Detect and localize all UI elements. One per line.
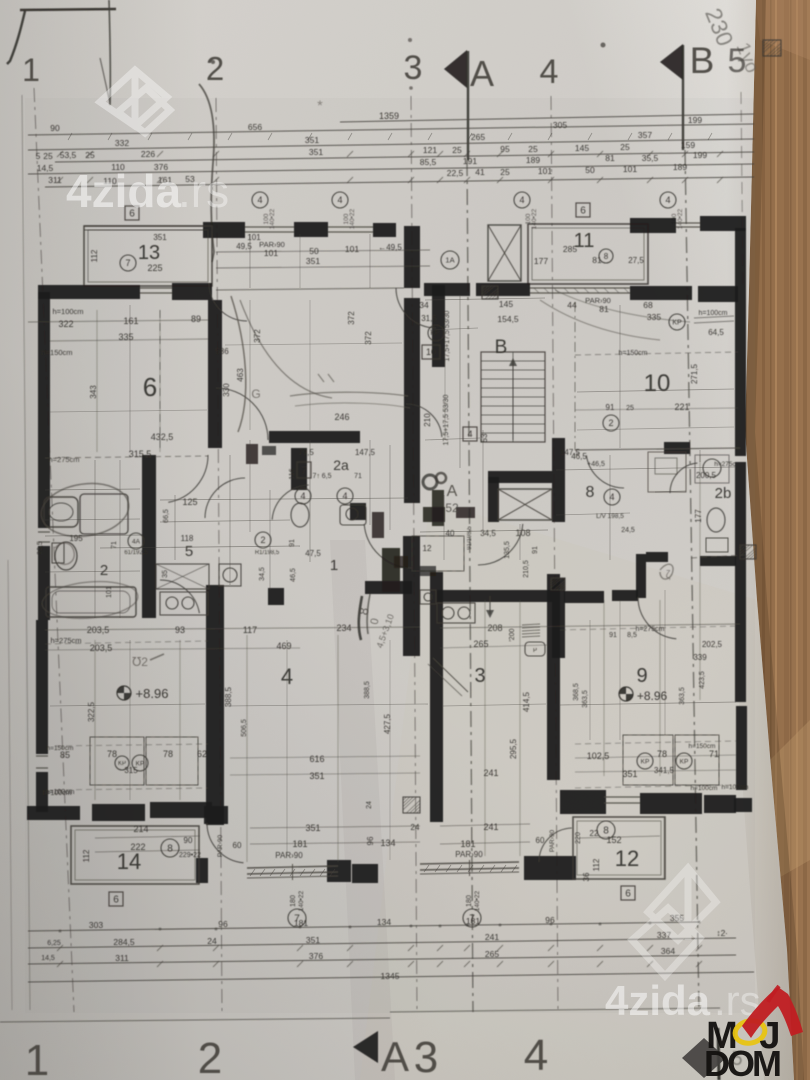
svg-text:h=100cm: h=100cm [722,784,749,791]
svg-text:24: 24 [207,936,217,946]
svg-text:34,5: 34,5 [480,529,496,538]
svg-text:7: 7 [125,258,130,268]
svg-text:372: 372 [253,329,262,343]
svg-text:40: 40 [446,529,455,538]
svg-text:101: 101 [538,166,552,176]
svg-text:372: 372 [364,331,373,345]
svg-text:101: 101 [264,248,278,258]
svg-text:2: 2 [206,50,224,87]
svg-text:8: 8 [604,252,609,261]
svg-text:177: 177 [694,509,703,523]
svg-text:351: 351 [309,771,324,781]
svg-text:351: 351 [153,233,167,242]
svg-text:388,5: 388,5 [224,686,233,707]
svg-text:152: 152 [606,835,621,845]
svg-text:140•22: 140•22 [677,208,684,229]
svg-text:35: 35 [162,570,169,578]
svg-text:357: 357 [638,130,652,140]
svg-text:85,5: 85,5 [420,157,437,167]
svg-text:66,5: 66,5 [163,509,170,523]
svg-text:P: P [533,648,537,654]
svg-text:351: 351 [309,147,323,157]
svg-text:203,5: 203,5 [90,643,113,653]
svg-text:199: 199 [693,150,707,160]
svg-text:222: 222 [130,842,145,852]
svg-text:284,5: 284,5 [113,937,135,947]
svg-text:27,5: 27,5 [628,256,644,265]
svg-text:PAR›90: PAR›90 [217,834,224,857]
svg-text:315,5: 315,5 [129,449,152,459]
svg-text:1: 1 [22,52,40,88]
svg-text:52: 52 [445,501,459,515]
svg-text:h=275cm: h=275cm [636,626,665,633]
svg-text:199: 199 [688,115,702,125]
svg-text:101: 101 [623,164,637,174]
svg-text:6,25: 6,25 [47,940,61,947]
svg-text:14,5: 14,5 [41,955,55,962]
svg-text:189: 189 [526,155,540,165]
svg-text:181: 181 [292,839,307,849]
svg-text:3: 3 [404,49,423,87]
svg-text:140•22: 140•22 [269,208,276,229]
svg-text:8,5: 8,5 [627,632,637,639]
svg-text:4: 4 [257,195,262,205]
svg-text:145: 145 [499,299,513,309]
svg-text:616: 616 [309,754,324,764]
svg-text:60: 60 [233,841,242,850]
svg-text:112: 112 [90,249,99,262]
svg-text:145: 145 [575,143,589,153]
svg-text:PAR›90: PAR›90 [455,850,483,859]
svg-text:R1/198,5: R1/198,5 [255,550,280,556]
svg-text:96: 96 [218,919,228,929]
svg-text:50: 50 [309,246,319,256]
svg-text:22: 22 [590,829,599,838]
svg-text:3: 3 [474,665,485,687]
svg-text:1A: 1A [445,256,454,265]
svg-text:89: 89 [191,314,201,324]
svg-text:364: 364 [661,946,675,956]
svg-text:91/198,5: 91/198,5 [467,526,473,550]
svg-text:24: 24 [366,801,373,809]
svg-text:125: 125 [182,497,197,507]
svg-text:ζ: ζ [666,569,671,581]
svg-text:5: 5 [728,42,747,80]
svg-text:101: 101 [345,244,359,254]
svg-text:B: B [690,40,715,81]
svg-text:h=100cm: h=100cm [52,307,83,316]
svg-text:311: 311 [115,953,129,963]
svg-text:+46,5: +46,5 [587,461,605,468]
svg-text:161: 161 [123,316,138,326]
svg-text:7↑ 6,5: 7↑ 6,5 [312,473,331,480]
svg-text:226: 226 [141,149,155,159]
svg-text:351: 351 [305,135,319,145]
svg-text:121: 121 [423,145,437,155]
svg-text:203,5: 203,5 [87,625,110,635]
svg-text:305: 305 [553,120,567,130]
svg-text:81: 81 [605,153,615,163]
svg-text:25: 25 [85,150,95,160]
svg-text:25: 25 [626,405,634,412]
svg-text:A: A [381,1033,409,1080]
svg-text:50: 50 [585,165,595,175]
svg-text:135,5: 135,5 [504,541,511,559]
svg-text:M: M [752,1043,782,1080]
svg-text:6: 6 [143,372,157,402]
svg-text:134: 134 [380,838,395,848]
svg-text:h=275cm: h=275cm [50,636,81,645]
svg-text:2: 2 [100,562,108,579]
svg-text:4: 4 [524,1031,548,1080]
svg-text:117: 117 [243,625,257,635]
svg-text:285: 285 [563,244,577,254]
svg-text:12: 12 [423,544,432,553]
svg-text:332: 332 [115,138,129,148]
svg-text:61/192,5: 61/192,5 [124,550,148,556]
svg-text:241: 241 [483,768,498,778]
svg-text:KP: KP [118,761,126,767]
svg-text:225: 225 [147,263,162,273]
svg-text:60: 60 [536,836,545,845]
svg-text:177: 177 [534,256,548,266]
svg-text:22,5: 22,5 [447,168,464,178]
svg-text:210: 210 [423,413,432,427]
svg-text:25: 25 [452,145,462,155]
svg-text:62: 62 [197,749,207,759]
svg-text:96: 96 [366,836,375,845]
svg-text:246: 246 [334,412,349,422]
svg-text:14,5: 14,5 [37,163,54,173]
svg-text:PAR›90: PAR›90 [549,829,556,852]
svg-text:′200: ′200 [509,628,516,641]
svg-text:140•22: 140•22 [349,208,356,229]
svg-text:h=150cm: h=150cm [619,350,648,357]
svg-text:93: 93 [175,625,185,635]
svg-text:46,5: 46,5 [290,568,297,582]
svg-text:214: 214 [133,824,148,834]
svg-text:4: 4 [540,53,559,91]
svg-text:5: 5 [36,151,41,161]
svg-text:78: 78 [657,749,667,759]
svg-text:414,5: 414,5 [522,691,531,712]
svg-text:h=100cm: h=100cm [691,785,718,792]
svg-text:6: 6 [580,206,586,217]
svg-text:25: 25 [620,142,630,152]
svg-text:13: 13 [138,242,160,264]
svg-text:10: 10 [644,370,671,397]
svg-text:4: 4 [300,491,305,501]
svg-text:4zida: 4zida [66,165,181,217]
svg-text:241: 241 [483,822,498,832]
svg-text:91: 91 [609,632,617,639]
svg-text:31,5: 31,5 [421,314,437,323]
svg-text:71: 71 [354,473,362,480]
svg-text:271,5: 271,5 [690,363,699,384]
svg-text:6: 6 [113,895,119,906]
svg-text:351: 351 [622,769,637,779]
svg-text:1359: 1359 [379,111,399,121]
svg-text:134: 134 [377,917,391,927]
svg-text:210,5: 210,5 [523,560,530,578]
svg-text:34: 34 [419,300,429,310]
svg-text:351: 351 [305,823,320,833]
svg-text:339: 339 [693,653,707,662]
svg-text:463: 463 [236,368,245,382]
svg-text:6: 6 [625,889,631,900]
svg-text:102,5: 102,5 [587,751,610,761]
svg-text:←49,5: ←49,5 [378,243,402,252]
svg-text:108: 108 [515,528,530,538]
svg-text:147,5: 147,5 [560,448,581,457]
svg-text:79,5: 79,5 [298,448,314,457]
svg-text:2: 2 [608,418,613,428]
svg-text:140•22: 140•22 [531,208,538,229]
svg-text:4: 4 [342,491,347,501]
svg-text:234: 234 [336,623,351,633]
svg-text:h=100cm: h=100cm [699,310,728,317]
svg-text:101: 101 [247,233,261,242]
svg-text:322,5: 322,5 [87,701,96,722]
svg-text:388,5: 388,5 [364,681,371,699]
svg-text:PAR›90: PAR›90 [275,851,303,860]
svg-text:2: 2 [260,535,265,545]
svg-text:368,5: 368,5 [573,683,580,701]
svg-text:335: 335 [647,312,661,322]
svg-text:44: 44 [567,300,577,310]
svg-text:8: 8 [603,826,609,837]
svg-text:h=150cm: h=150cm [41,348,72,357]
svg-text:432,5: 432,5 [151,432,174,442]
svg-text:KP: KP [430,330,440,337]
svg-text:↕2∙: ↕2∙ [716,928,727,938]
svg-text:154,5: 154,5 [497,314,519,324]
svg-text:10: 10 [426,347,436,357]
svg-text:351: 351 [306,256,320,266]
svg-text:363,5: 363,5 [679,687,686,705]
svg-text:3: 3 [414,1033,438,1080]
svg-text:24: 24 [411,823,420,832]
svg-text:12: 12 [615,846,639,871]
svg-text:17,5+17,5 53/30: 17,5+17,5 53/30 [443,395,450,446]
svg-text:189: 189 [673,162,687,172]
svg-text:7: 7 [301,465,307,477]
svg-text:181: 181 [460,839,475,849]
svg-text:656: 656 [248,122,262,132]
svg-text:159: 159 [681,140,695,150]
svg-text:363,5: 363,5 [582,690,589,708]
svg-text:A: A [447,483,458,500]
svg-text:372: 372 [347,311,356,325]
svg-text:1: 1 [25,1036,49,1080]
svg-text:14: 14 [117,849,141,874]
svg-text:376: 376 [309,951,323,961]
svg-text:1: 1 [330,557,338,574]
svg-text:KP: KP [136,760,145,767]
svg-text:101: 101 [106,586,113,598]
svg-text:KP: KP [680,758,689,765]
svg-text:220: 220 [575,832,582,844]
svg-text:335: 335 [118,332,133,342]
svg-text:1345: 1345 [381,971,400,981]
svg-text:200,5: 200,5 [696,471,717,480]
svg-text:4A: 4A [132,538,141,545]
svg-text:B: B [495,337,508,358]
svg-text:423,5: 423,5 [699,671,706,689]
svg-text:h=100cm: h=100cm [43,790,72,797]
svg-text:140•22: 140•22 [474,890,481,911]
svg-text:36: 36 [582,872,591,881]
svg-text:25: 25 [528,144,538,154]
svg-text:118: 118 [181,534,194,543]
svg-text:47,5: 47,5 [305,549,321,558]
svg-text:9: 9 [636,665,647,687]
svg-text:208: 208 [487,623,502,633]
svg-text:191: 191 [463,156,477,166]
svg-text:112: 112 [592,858,601,871]
svg-text:.rs: .rs [178,165,229,217]
svg-text:24,5: 24,5 [621,527,635,534]
svg-text:A: A [470,53,494,94]
svg-text:℧2: ℧2 [132,655,148,669]
svg-text:295,5: 295,5 [509,738,518,759]
svg-text:4zida: 4zida [605,977,711,1024]
svg-text:81: 81 [599,304,609,314]
svg-text:180: 180 [466,895,473,907]
svg-text:343: 343 [89,385,98,399]
svg-text:180: 180 [290,895,297,907]
svg-text:8: 8 [167,844,173,855]
svg-text:71: 71 [709,749,719,759]
svg-text:241: 241 [485,932,499,942]
svg-text:G: G [251,387,260,401]
svg-text:+8.96: +8.96 [136,686,169,701]
svg-text:⁤64,5: ⁤64,5 [708,328,724,337]
svg-text:4: 4 [337,195,342,205]
svg-text:91: 91 [532,546,539,554]
svg-text:8: 8 [586,484,595,501]
svg-text:4: 4 [519,195,524,205]
svg-text:KP: KP [672,319,682,326]
svg-text:25: 25 [500,167,510,177]
svg-text:202,5: 202,5 [702,640,723,649]
svg-text:*: * [317,97,323,113]
svg-text:23,5: 23,5 [37,541,44,555]
svg-text:330: 330 [222,383,231,397]
svg-text:KP: KP [641,758,650,765]
svg-text:586: 586 [215,347,229,356]
svg-text:4: 4 [467,429,472,439]
svg-text:68: 68 [643,300,653,310]
svg-text:303: 303 [89,920,103,930]
svg-text:O: O [727,1043,755,1080]
svg-text:17,5+17,5 53/30: 17,5+17,5 53/30 [444,311,451,362]
svg-text:53: 53 [480,433,489,442]
svg-text:90: 90 [184,836,193,845]
svg-text:2b: 2b [715,485,732,502]
svg-text:112: 112 [82,849,91,862]
svg-text:147,5: 147,5 [355,448,376,457]
svg-text:5: 5 [185,543,193,560]
svg-text:265: 265 [473,639,488,649]
svg-text:265: 265 [471,132,485,142]
svg-text:341,5: 341,5 [654,766,675,775]
svg-text:229•22: 229•22 [179,852,201,859]
svg-text:322: 322 [58,319,73,329]
svg-text:140•22: 140•22 [298,890,305,911]
svg-text:221: 221 [674,402,689,412]
svg-text:4: 4 [665,195,670,205]
svg-text:2a: 2a [333,457,349,473]
svg-text:34,5: 34,5 [259,567,266,581]
svg-text:351: 351 [306,935,320,945]
svg-text:h=275cm: h=275cm [48,455,79,464]
svg-text:78: 78 [107,749,117,759]
svg-text:2: 2 [198,1034,222,1080]
svg-text:+8.96: +8.96 [637,689,668,703]
svg-text:78: 78 [163,749,173,759]
svg-text:116: 116 [289,468,296,479]
svg-text:90: 90 [50,123,60,133]
svg-text:427,5: 427,5 [383,713,392,734]
svg-text:41: 41 [475,167,485,177]
svg-text:506,5: 506,5 [241,719,248,737]
svg-text:25: 25 [43,151,53,161]
svg-text:h=150cm: h=150cm [47,745,74,752]
svg-text:h=150cm: h=150cm [689,743,716,750]
svg-text:469: 469 [276,641,291,651]
svg-text:91: 91 [606,403,615,412]
